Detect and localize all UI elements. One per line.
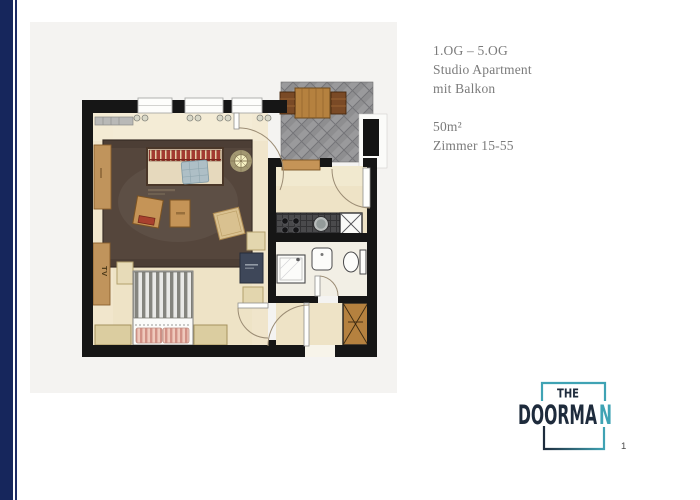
bed: [133, 271, 193, 345]
sofa-pillow: [181, 160, 209, 184]
wall-cabinet: [94, 145, 111, 209]
pillow-right: [163, 328, 189, 343]
logo-doorma: DOORMA: [518, 400, 597, 431]
info-rooms: Zimmer 15-55: [433, 136, 532, 155]
pillow-left: [136, 328, 162, 343]
tv-lowboard: TV: [93, 243, 110, 305]
coffee-table-2: [170, 200, 190, 227]
logo-the: THE: [557, 386, 579, 401]
balcony-table: [295, 88, 330, 118]
info-size: 50m²: [433, 117, 532, 136]
tv-label: TV: [100, 266, 109, 277]
left-accent-line: [15, 0, 17, 500]
left-accent-bar: [0, 0, 13, 500]
coffee-table-1: [133, 196, 163, 228]
entrance-threshold: [305, 345, 335, 357]
balcony: [280, 82, 387, 168]
hall-sideboard: [282, 160, 320, 170]
slide: TV: [0, 0, 700, 500]
doorman-logo: THE DOORMA N: [515, 378, 615, 456]
wardrobe: [343, 303, 368, 345]
ceiling-light-symbol: [230, 150, 252, 172]
floorplan-drawing: TV: [30, 22, 397, 393]
side-table: [117, 262, 133, 284]
apartment-info: 1.OG – 5.OG Studio Apartment mit Balkon …: [433, 41, 532, 155]
kitchen: [276, 213, 362, 235]
fridge: [340, 213, 362, 235]
balcony-chair-right: [331, 92, 346, 114]
info-balcony: mit Balkon: [433, 79, 532, 98]
shaft-column: [363, 119, 379, 156]
nightstand-right: [194, 325, 227, 345]
info-floors: 1.OG – 5.OG: [433, 41, 532, 60]
windows: [138, 98, 262, 113]
shower: [277, 255, 305, 283]
washbasin: [312, 248, 332, 270]
nightstand-left: [95, 325, 131, 345]
page-number: 1: [621, 441, 626, 452]
dark-side-unit: [240, 253, 263, 283]
radiator: [95, 117, 133, 125]
stool-1: [247, 232, 265, 250]
logo-n: N: [599, 400, 612, 431]
toilet: [344, 250, 367, 274]
info-type: Studio Apartment: [433, 60, 532, 79]
